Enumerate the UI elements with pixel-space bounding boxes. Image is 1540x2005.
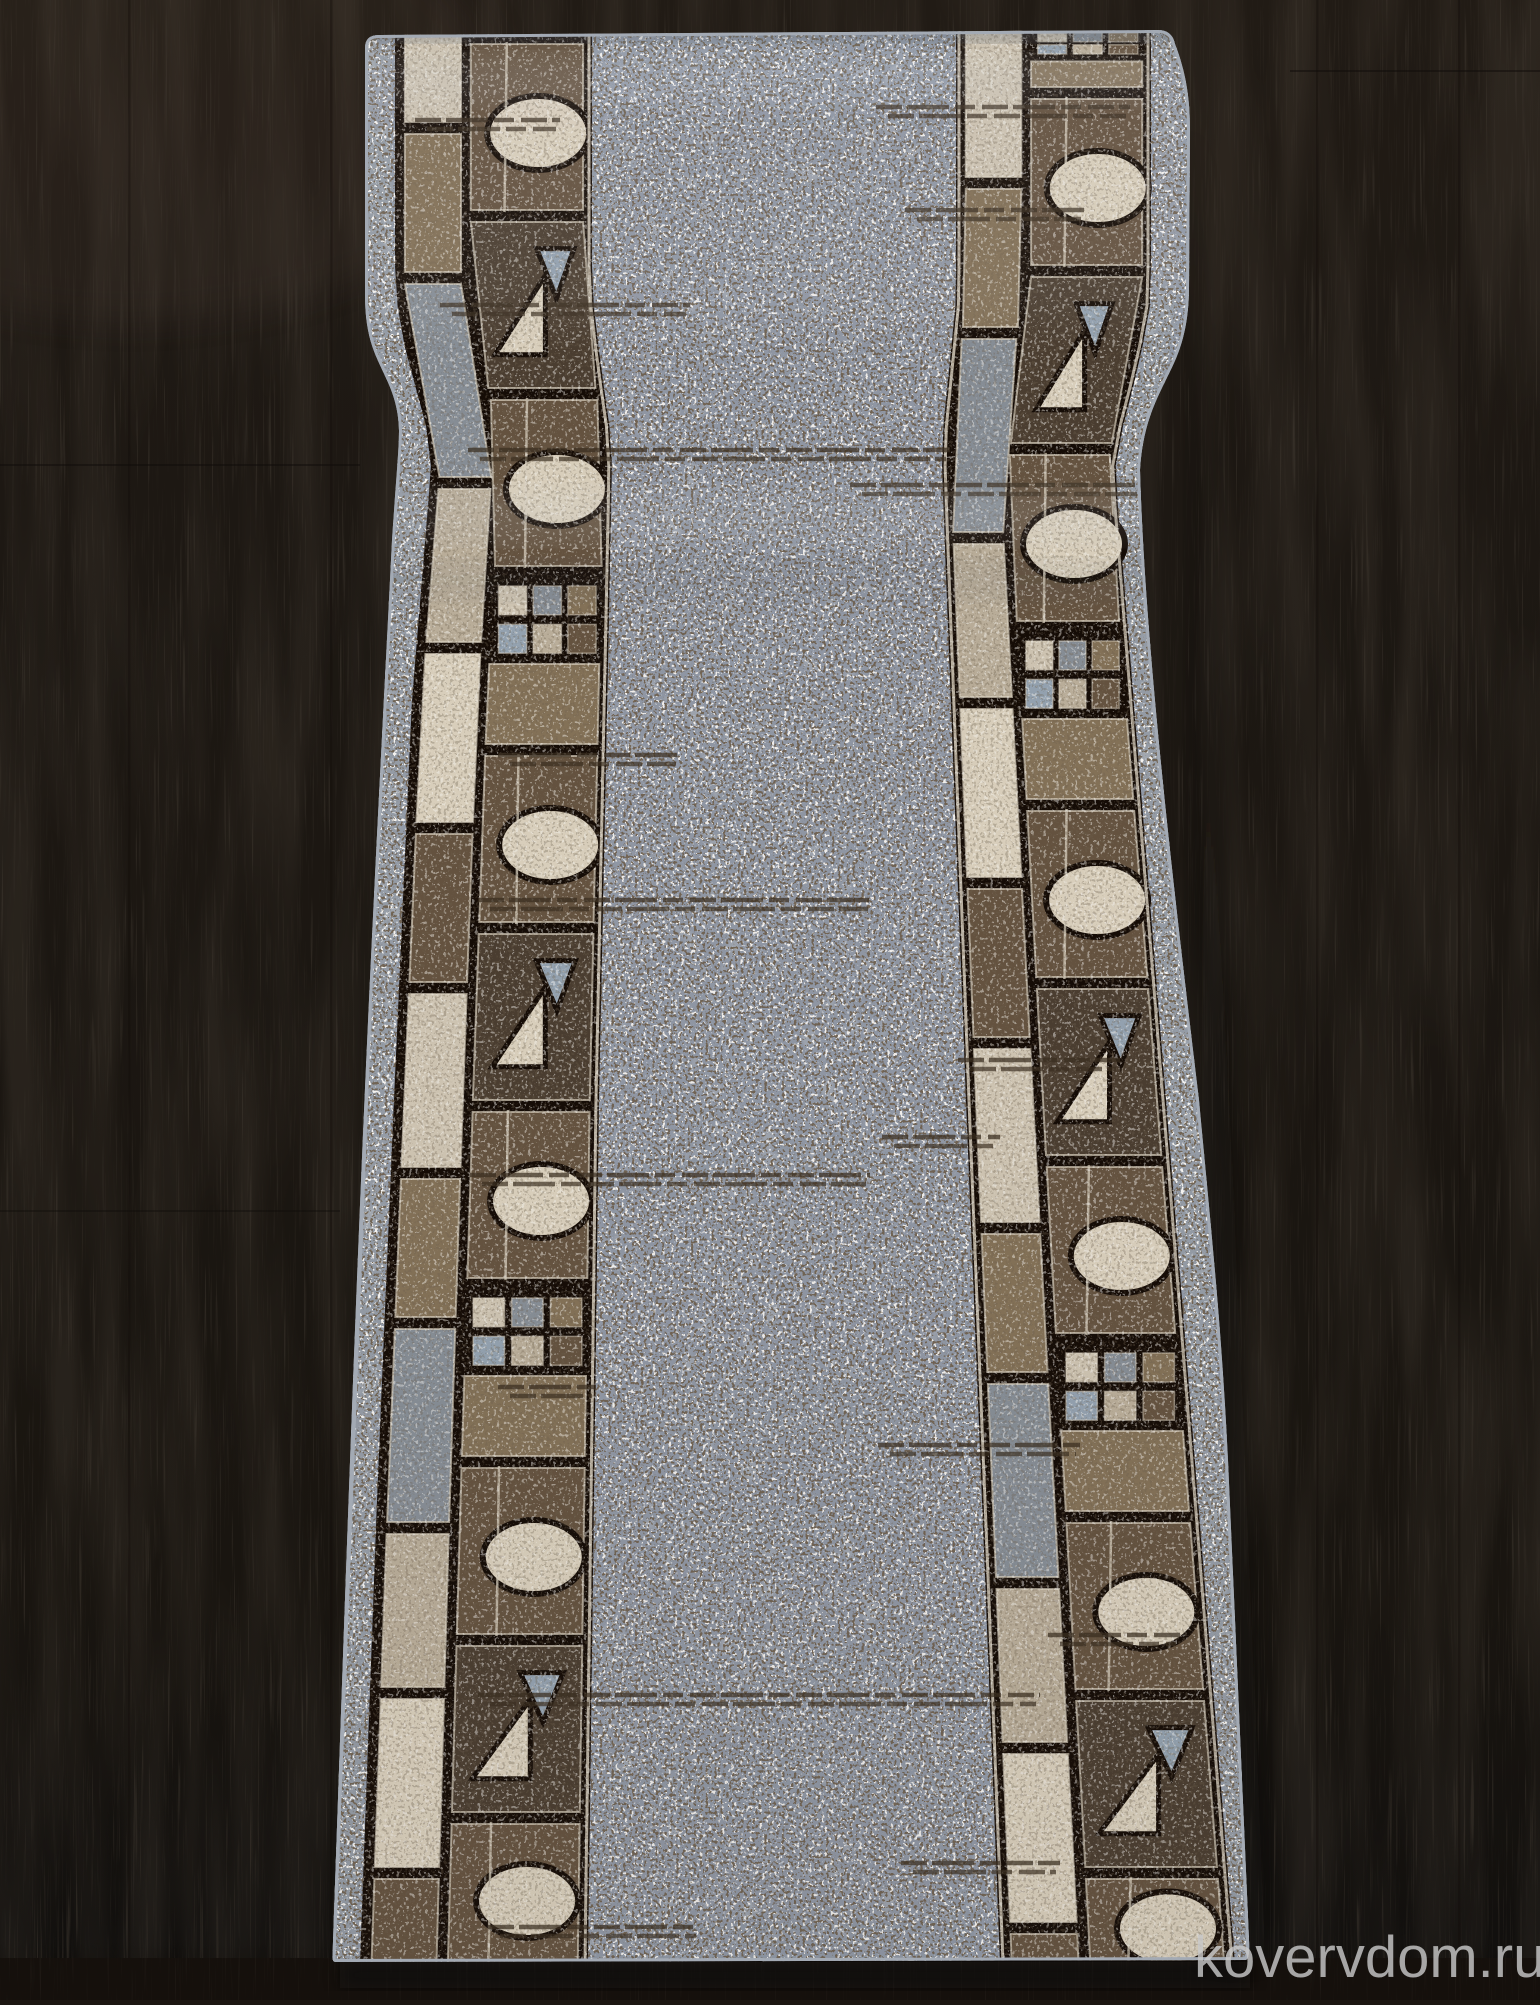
svg-text:kovervdom.ru: kovervdom.ru: [1194, 1925, 1540, 1990]
